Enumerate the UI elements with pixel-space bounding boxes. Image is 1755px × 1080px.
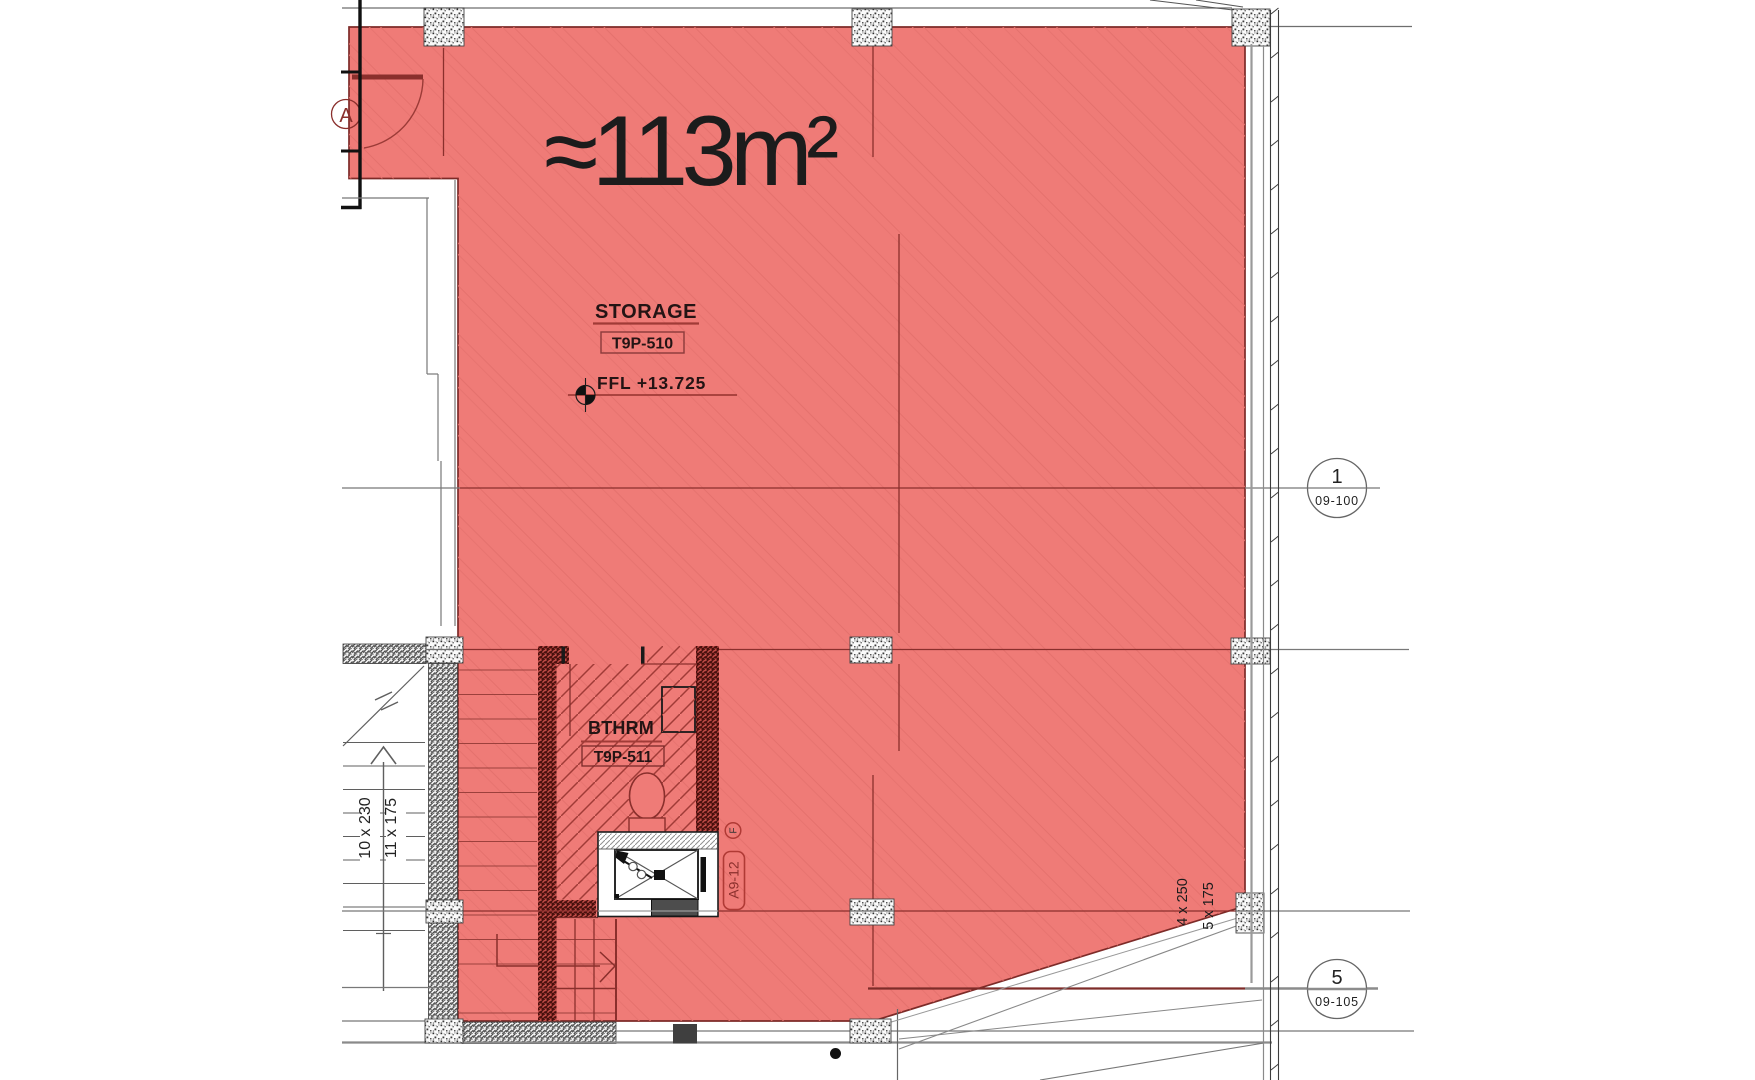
svg-text:A9-12: A9-12 [726,861,742,899]
svg-text:≈113m²: ≈113m² [544,95,838,206]
svg-text:1: 1 [1331,466,1342,488]
svg-text:5: 5 [1331,967,1342,989]
svg-text:FFL +13.725: FFL +13.725 [597,373,706,393]
svg-text:5 x 175: 5 x 175 [1201,882,1217,930]
svg-text:10 x 230: 10 x 230 [357,797,374,858]
svg-text:BTHRM: BTHRM [588,718,654,738]
svg-text:T9P-510: T9P-510 [612,336,673,353]
svg-text:09-105: 09-105 [1315,995,1359,1009]
svg-text:11 x 175: 11 x 175 [383,798,400,858]
svg-text:4 x 250: 4 x 250 [1175,878,1191,926]
svg-text:09-100: 09-100 [1315,494,1359,508]
svg-text:F: F [729,827,740,833]
svg-text:A: A [339,105,353,127]
svg-text:STORAGE: STORAGE [595,301,697,323]
svg-text:T9P-511: T9P-511 [594,749,653,766]
